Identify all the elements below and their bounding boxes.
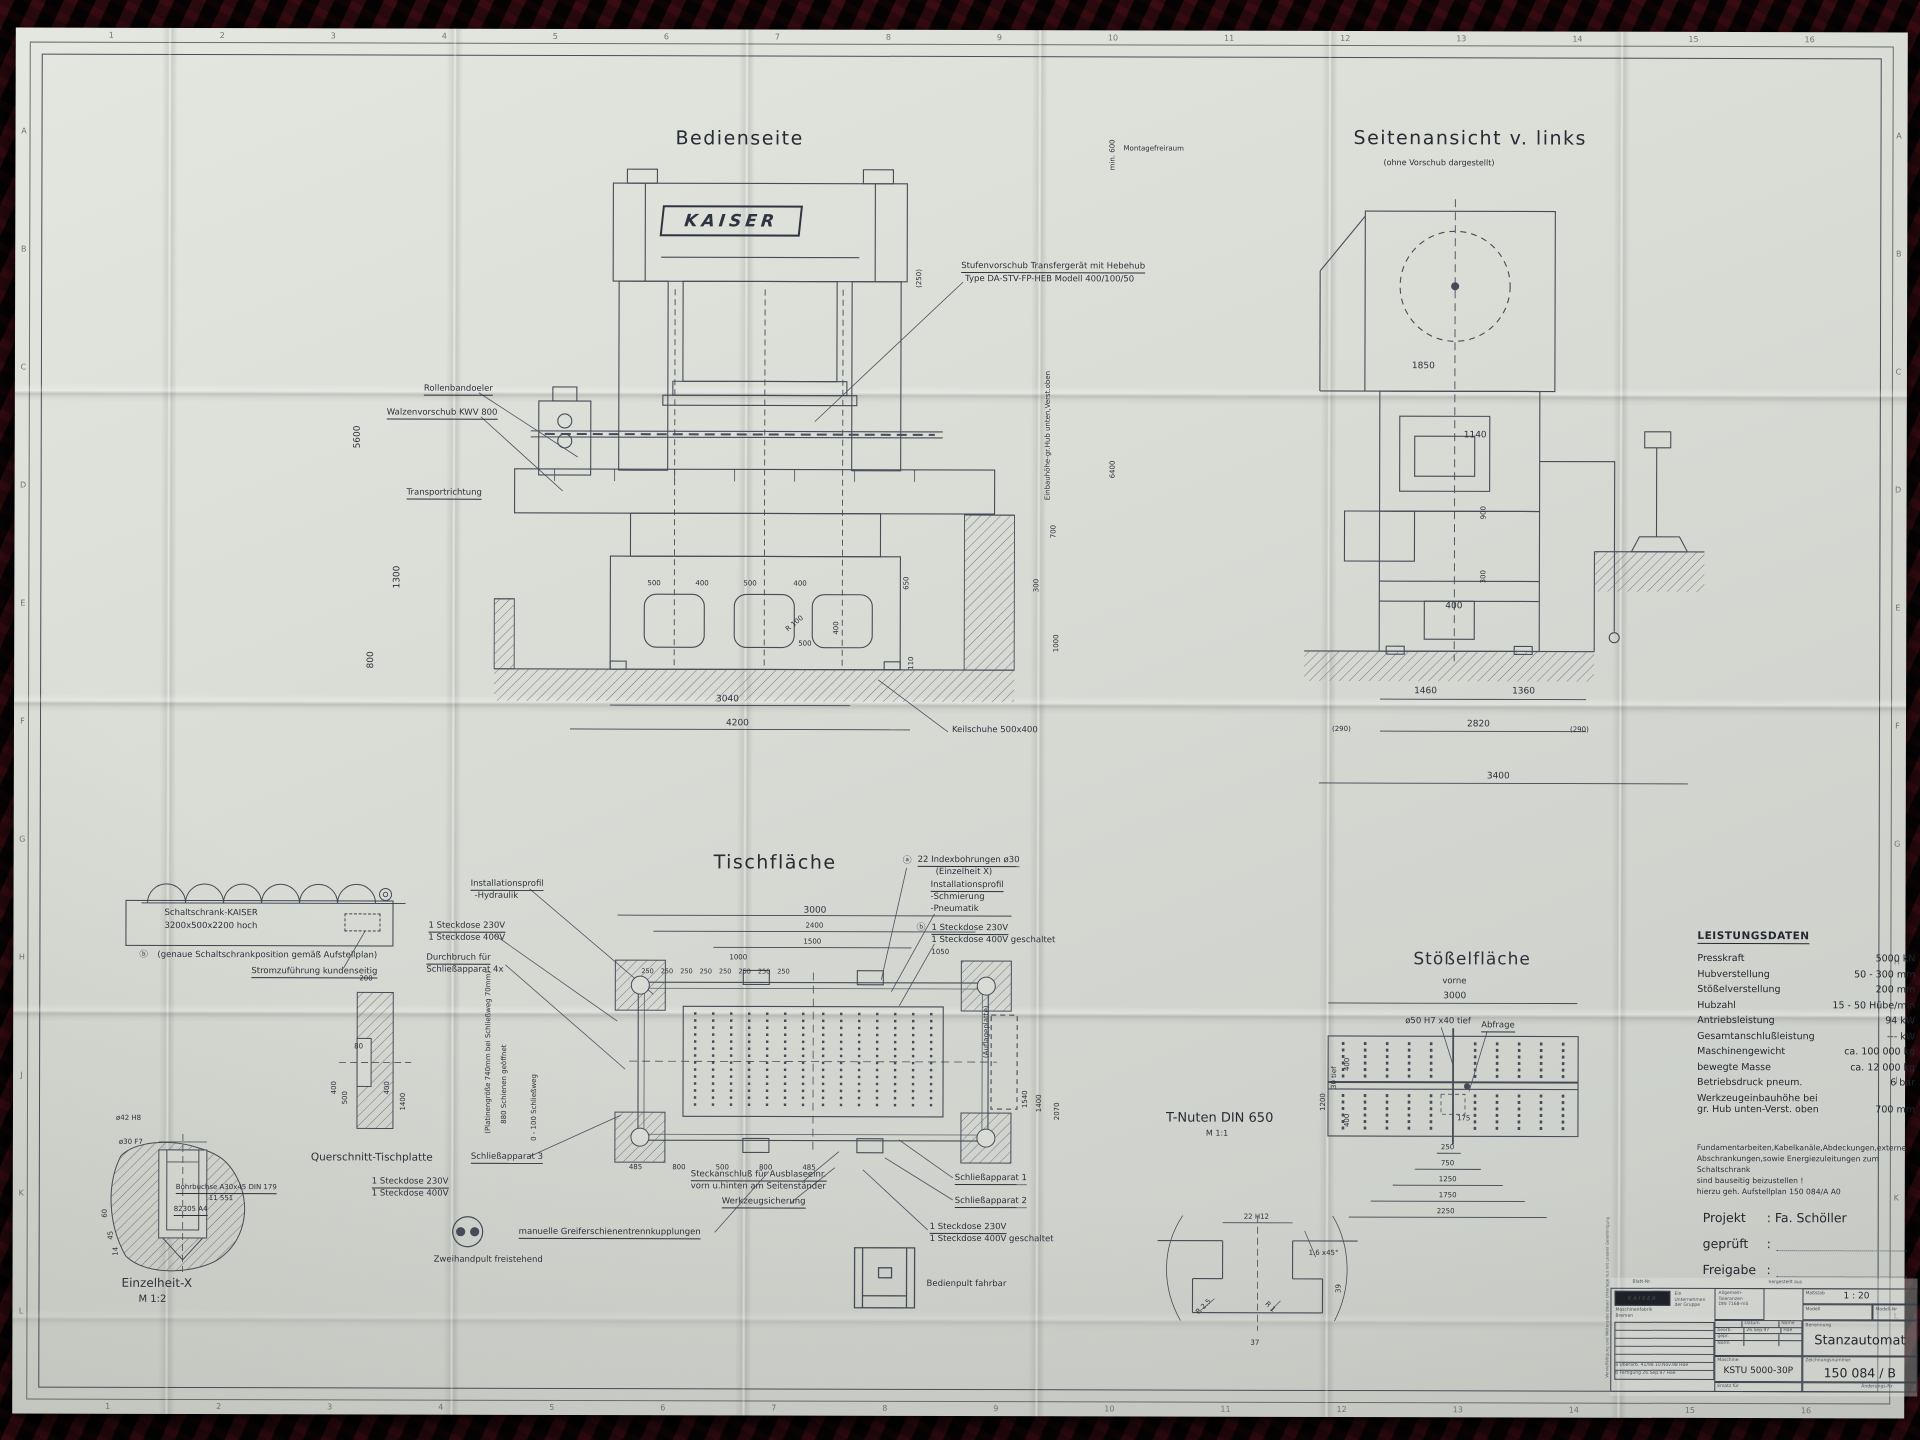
bearb-date: 26.Sep.97 xyxy=(1743,1328,1780,1334)
label-steckanschluss-1: Steckanschluß für Ausblaseeinr. xyxy=(691,1169,827,1181)
label-steckanschluss-2: vorn u.hinten am Seitenständer xyxy=(691,1181,826,1191)
label-steckdose-400-left: 1 Steckdose 400V xyxy=(428,933,505,943)
dim-opening: 500 xyxy=(647,579,660,587)
dim-700: 700 xyxy=(1049,525,1057,538)
aenderung-label: Änderungs-Nr xyxy=(1861,1384,1892,1390)
label-durchbruch-1: Durchbruch für xyxy=(426,953,490,965)
colon: : xyxy=(1767,1262,1771,1277)
massstab-value: 1 : 20 xyxy=(1843,1291,1869,1301)
dim-80: 80 xyxy=(354,1042,363,1050)
dim-250: 250 xyxy=(680,967,692,975)
note-line: hierzu geh. Aufstellplan 150 084/A A0 xyxy=(1697,1186,1906,1198)
hergestellt-label: hergestellt aus xyxy=(1769,1280,1803,1286)
view-title-querschnitt: Querschnitt-Tischplatte xyxy=(311,1151,433,1163)
leistungsdaten-title: LEISTUNGSDATEN xyxy=(1697,930,1809,944)
label-instprofil-left-1: Installationsprofil xyxy=(471,879,544,891)
dim-total-width: 4200 xyxy=(726,718,749,728)
dim-400-bottom: 400 xyxy=(1343,1114,1351,1127)
ld-value: 94 kW xyxy=(1885,1015,1915,1026)
schaltschrank-line1: Schaltschrank-KAISER xyxy=(164,908,257,918)
schaltschrank-note: (genaue Schaltschrankposition gemäß Aufs… xyxy=(157,950,377,961)
kaiser-machine-logo: KAISER xyxy=(660,205,803,236)
label-steckdose-400-bl: 1 Steckdose 400V xyxy=(372,1188,449,1198)
label-steckdose-230-left: 1 Steckdose 230V xyxy=(428,921,505,933)
label-walzenvorschub: Walzenvorschub KWV 800 xyxy=(387,407,498,419)
toleranz-line: DIN 7168-mS xyxy=(1715,1302,1763,1308)
schaltschrank-box: Schaltschrank-KAISER 3200x500x2200 hoch xyxy=(125,900,393,947)
dim-d42: ø42 H8 xyxy=(116,1114,141,1122)
dim-22h12: 22 H12 xyxy=(1244,1213,1269,1221)
dim-6400: 6400 xyxy=(1109,461,1117,479)
label-stufenvorschub-2: Type DA-STV-FP-HEB Modell 400/100/50 xyxy=(965,274,1134,284)
dim-1360: 1360 xyxy=(1512,686,1535,696)
label-instprofil-right-3: -Pneumatik xyxy=(931,904,979,914)
label-einzelheit-ref: (Einzelheit X) xyxy=(936,867,993,877)
dim-bottom: 800 xyxy=(672,1163,685,1171)
dim-400: 400 xyxy=(1445,601,1462,611)
dim-300: 300 xyxy=(1479,570,1487,583)
view-title-tnuten: T-Nuten DIN 650 xyxy=(1166,1111,1273,1126)
view-title-einzelheit: Einzelheit-X xyxy=(122,1276,193,1290)
dim-1540: 1540 xyxy=(1021,1090,1029,1108)
massstab-cell: Maßstab 1 : 20 xyxy=(1802,1288,1917,1304)
dim-2400: 2400 xyxy=(805,922,823,930)
press-front-view-drawing xyxy=(494,169,1015,740)
modell-cell: Modell xyxy=(1802,1304,1872,1320)
querschnitt-drawing xyxy=(335,980,415,1140)
dim-d30: ø30 F7 xyxy=(119,1138,143,1146)
ld-label: Hubverstellung xyxy=(1697,968,1769,979)
index-mark: ⓐ xyxy=(903,856,912,866)
dim-opening: 400 xyxy=(695,579,708,587)
dim-110: 110 xyxy=(907,656,915,669)
colon: : xyxy=(1767,1236,1771,1251)
label-bedienpult: Bedienpult fahrbar xyxy=(927,1279,1007,1289)
dim-1250: 1250 xyxy=(1439,1175,1457,1183)
ld-label: Stößelverstellung xyxy=(1697,984,1780,995)
revision-row: b Fertigung 26.Sep.97 Hae xyxy=(1615,1371,1713,1378)
dim-2820: 2820 xyxy=(1467,719,1490,729)
dim-3400: 3400 xyxy=(1487,771,1510,781)
label-schliessapparat-3: Schließapparat 3 xyxy=(471,1152,543,1164)
schaltschrank-line2: 3200x500x2200 hoch xyxy=(164,921,257,931)
dim-base-width: 3040 xyxy=(716,694,739,704)
projekt-label: Projekt xyxy=(1703,1210,1767,1225)
dim-3000: 3000 xyxy=(803,906,826,916)
label-transportrichtung: Transportrichtung xyxy=(407,488,482,500)
dim-250: 250 xyxy=(661,967,673,975)
stromzufuehrung-marker xyxy=(344,913,380,931)
label-werkzeugsicherung: Werkzeugsicherung xyxy=(722,1196,806,1208)
dim-height-base: 800 xyxy=(366,651,376,668)
ld-value: ca. 12 000 kg xyxy=(1850,1062,1915,1073)
norm-label: Norm xyxy=(1715,1340,1743,1346)
freigabe-label: Freigabe xyxy=(1703,1262,1767,1277)
ld-value: 5000 kN xyxy=(1876,953,1916,964)
dim-60: 60 xyxy=(101,1209,109,1218)
modell-label: Modell xyxy=(1805,1307,1820,1313)
maschine-cell: Maschine KSTU 5000-30P xyxy=(1714,1356,1802,1382)
dim-1000: 1000 xyxy=(1052,634,1060,652)
dim-250: 250 xyxy=(758,967,770,975)
dim-300: 300 xyxy=(1032,579,1040,592)
bearb-name: Hae xyxy=(1780,1328,1801,1334)
note-line: sind bauseitig beizustellen ! xyxy=(1697,1175,1906,1187)
schaltschrank-note-mark: ⓑ xyxy=(139,950,148,960)
dim-2070: 2070 xyxy=(1053,1102,1061,1120)
copyright-note: Vervielfältigung und Weitergabe dieser U… xyxy=(1604,1217,1609,1378)
tnuten-scale: M 1:1 xyxy=(1206,1129,1228,1138)
dim-175: 175 xyxy=(1457,1114,1470,1122)
label-bohrung-50: ø50 H7 x40 tief xyxy=(1405,1016,1471,1026)
label-schliessweg: 0 - 100 Schließweg xyxy=(529,1074,539,1141)
benennung-label: Benennung xyxy=(1805,1323,1831,1329)
drawing-number: 150 084 / B xyxy=(1803,1365,1916,1380)
dim-1050: 1050 xyxy=(931,948,949,956)
datum-name-table: Datum Name bearb. 26.Sep.97 Hae gepr. No… xyxy=(1714,1320,1802,1356)
table-plan-drawing xyxy=(603,954,1024,1170)
dim-400-left: 400 xyxy=(330,1081,338,1094)
view-subtitle-seitenansicht: (ohne Vorschub dargestellt) xyxy=(1383,158,1494,167)
name-header: Name xyxy=(1778,1321,1801,1327)
label-indexbohrungen: 22 Indexbohrungen ø30 xyxy=(918,855,1020,867)
benennung-cell: Benennung Stanzautomat xyxy=(1802,1320,1917,1356)
view-title-tischflaeche: Tischfläche xyxy=(714,851,837,873)
dim-500: 500 xyxy=(341,1091,349,1104)
zeichnung-label: Zeichnungsnummer xyxy=(1805,1358,1850,1364)
note-line: Abschrankungen,sowie Energiezuleitungen … xyxy=(1697,1153,1906,1176)
drawing-title: Stanzautomat xyxy=(1803,1333,1916,1348)
zeichnungsnummer-cell: Zeichnungsnummer 150 084 / B xyxy=(1802,1356,1917,1382)
dim-1750: 1750 xyxy=(1439,1191,1457,1199)
label-steckdose-230-br: 1 Steckdose 230V xyxy=(930,1222,1007,1234)
dim-1850: 1850 xyxy=(1412,361,1435,371)
maschine-label: Maschine xyxy=(1717,1358,1738,1364)
dim-250: 250 xyxy=(1441,1143,1454,1151)
ld-value: ca. 100 000 kg xyxy=(1844,1046,1915,1057)
einzelheit-drawing xyxy=(101,1128,261,1278)
ld-label: bewegte Masse xyxy=(1697,1061,1771,1072)
drawing-sheet: 12345678910111213141516 1234567891011121… xyxy=(12,28,1908,1419)
project-block: Projekt : Fa. Schöller geprüft : Freigab… xyxy=(1703,1210,1907,1289)
dim-opening: 400 xyxy=(793,580,806,588)
dim-200: 200 xyxy=(359,974,372,982)
dim-height-total: 5600 xyxy=(353,426,363,449)
label-stufenvorschub-1: Stufenvorschub Transfergerät mit Hebehub xyxy=(961,261,1145,273)
dim-250: 250 xyxy=(641,967,653,975)
label-schliessapparat-1: Schließapparat 1 xyxy=(955,1173,1027,1185)
dim-1460: 1460 xyxy=(1414,686,1437,696)
label-bohrbuchse-num: 11 551 xyxy=(209,1193,234,1203)
revision-row: a Überarb. 41/98 10.Nov.98 Hae xyxy=(1615,1363,1713,1371)
dim-opening: 500 xyxy=(743,579,756,587)
projekt-value: : Fa. Schöller xyxy=(1767,1210,1847,1225)
label-30-tief: 30 tief xyxy=(1329,1066,1339,1089)
dim-1000: 1000 xyxy=(729,953,747,961)
view-title-seitenansicht: Seitenansicht v. links xyxy=(1354,127,1587,150)
datum-header: Datum xyxy=(1741,1321,1778,1327)
revision-table: a Überarb. 41/98 10.Nov.98 Hae b Fertigu… xyxy=(1614,1322,1714,1380)
ld-label: Werkzeugeinbauhöhe bei gr. Hub unten-Ver… xyxy=(1697,1092,1819,1114)
dim-1400: 1400 xyxy=(1035,1094,1043,1112)
dim-250: 250 xyxy=(719,967,731,975)
steckdose-mark: ⓑ xyxy=(916,923,925,933)
dim-900: 900 xyxy=(1480,506,1488,519)
dim-290-left: (290) xyxy=(1332,725,1351,733)
note-line: Fundamentarbeiten,Kabelkanäle,Abdeckunge… xyxy=(1697,1142,1906,1154)
ld-value: 6 bar xyxy=(1890,1077,1915,1088)
blatt-nr-label: Blatt-Nr. xyxy=(1633,1280,1651,1286)
label-instprofil-right-1: Installationsprofil xyxy=(931,880,1004,892)
dim-250: (250) xyxy=(915,269,923,288)
ld-value: 700 mm xyxy=(1875,1104,1915,1115)
label-auflageplatte: (Auflageplatte) xyxy=(981,1005,991,1058)
modellnr-cell: Modell-Nr xyxy=(1872,1304,1917,1320)
dim-14: 14 xyxy=(112,1247,120,1256)
label-zweihandpult: Zweihandpult freistehend xyxy=(434,1255,543,1265)
bedienpult-symbol xyxy=(852,1246,916,1310)
ld-label: Presskraft xyxy=(1697,953,1744,964)
toleranz-cell: Allgemein- Toleranzen DIN 7168-mS xyxy=(1714,1288,1764,1320)
label-steckdose-230-tr: 1 Steckdose 230V xyxy=(931,923,1008,935)
dim-2250: 2250 xyxy=(1437,1207,1455,1215)
ld-value: --- kW xyxy=(1887,1031,1915,1042)
kaiser-titleblock-logo: KAISER xyxy=(1614,1291,1670,1306)
label-steckdose-400-br: 1 Steckdose 400V geschaltet xyxy=(930,1234,1054,1244)
label-rollenbandoeler: Rollenbandoeler xyxy=(424,384,493,396)
leistungsdaten-table: LEISTUNGSDATEN Presskraft5000 kN Hubvers… xyxy=(1697,930,1915,1120)
massstab-label: Maßstab xyxy=(1806,1291,1825,1297)
aenderung-cell: Änderungs-Nr xyxy=(1802,1382,1917,1392)
dim-1500: 1500 xyxy=(803,938,821,946)
label-einbauhoehe: Einbauhöhe-gr.Hub unten,Verst.oben xyxy=(1043,371,1053,500)
label-instprofil-left-2: -Hydraulik xyxy=(475,891,519,901)
dim-1400: 1400 xyxy=(399,1093,407,1111)
dim-height-mid: 1300 xyxy=(392,566,402,589)
ld-label: Gesamtanschlußleistung xyxy=(1697,1030,1815,1041)
dim-290-right: (290) xyxy=(1570,726,1589,734)
geprueft-label: geprüft xyxy=(1703,1236,1767,1251)
dim-250: 250 xyxy=(777,968,789,976)
ld-value: 15 - 50 Hübe/min xyxy=(1832,1000,1915,1011)
maschine-value: KSTU 5000-30P xyxy=(1715,1366,1801,1376)
label-steckdose-230-bl: 1 Steckdose 230V xyxy=(372,1176,449,1188)
signature-line xyxy=(1777,1239,1907,1251)
dim-650: 650 xyxy=(902,576,910,589)
ld-label: Antriebsleistung xyxy=(1697,1015,1775,1026)
label-montagefreiraum: Montagefreiraum xyxy=(1123,143,1183,153)
dim-opening-w: 500 xyxy=(798,640,811,648)
label-min600: min. 600 xyxy=(1107,139,1117,170)
view-title-stoesselflaeche: Stößelfläche xyxy=(1413,949,1531,969)
label-schliessapparat-2: Schließapparat 2 xyxy=(955,1196,1027,1208)
dim-chamfer: 1.6 x45° xyxy=(1309,1249,1339,1257)
dim-sf-3000: 3000 xyxy=(1443,991,1466,1001)
ersatz-cell: Ersatz für xyxy=(1714,1382,1802,1392)
ld-value: 200 mm xyxy=(1876,984,1916,995)
stoessel-plan-drawing xyxy=(1313,1026,1593,1147)
label-keilschuhe: Keilschuhe 500x400 xyxy=(952,725,1038,735)
label-platinengroesse: (Platinengröße 740mm bei Schließweg 70mm… xyxy=(483,971,493,1134)
ld-label: Maschinengewicht xyxy=(1697,1046,1785,1057)
toleranz-line: Allgemein- xyxy=(1716,1289,1764,1297)
dim-400-right: 400 xyxy=(383,1081,391,1094)
zweihand-symbol xyxy=(449,1213,487,1251)
dim-45: 45 xyxy=(107,1231,115,1240)
press-side-view-drawing xyxy=(1304,191,1705,752)
label-pos-82305: 82305 A4 xyxy=(174,1204,208,1216)
ld-label: Betriebsdruck pneum. xyxy=(1697,1077,1802,1088)
dim-opening-h: 400 xyxy=(832,621,840,634)
dim-39: 39 xyxy=(1335,1284,1343,1293)
bearb-label: bearb. xyxy=(1715,1327,1743,1333)
dim-250: 250 xyxy=(738,967,750,975)
label-schienen: 880 Schienen geöffnet xyxy=(499,1044,509,1123)
label-steckdose-400-tr: 1 Steckdose 400V geschaltet xyxy=(931,935,1055,945)
dim-1200: 1200 xyxy=(1319,1093,1327,1111)
gepr-label: gepr. xyxy=(1715,1334,1743,1340)
title-block: Blatt-Nr. hergestellt aus Vervielfältigu… xyxy=(1610,1278,1917,1397)
foundation-note: Fundamentarbeiten,Kabelkanäle,Abdeckunge… xyxy=(1697,1142,1906,1198)
firm-line: Maschinenfabrik xyxy=(1615,1308,1652,1314)
label-greifer: manuelle Greiferschienentrennkupplungen xyxy=(519,1227,701,1239)
dim-1140: 1140 xyxy=(1464,430,1487,440)
dim-400-top: 400 xyxy=(1343,1058,1351,1071)
einzelheit-scale: M 1:2 xyxy=(138,1294,166,1305)
unternehmen-note: Ein Unternehmen der Gruppe xyxy=(1674,1292,1712,1309)
label-instprofil-right-2: -Schmierung xyxy=(931,892,985,902)
ld-value: 50 - 300 mm xyxy=(1854,969,1915,980)
ersatz-label: Ersatz für xyxy=(1717,1384,1739,1390)
label-vorne: vorne xyxy=(1442,976,1466,986)
dim-37: 37 xyxy=(1250,1339,1259,1347)
dim-bottom: 485 xyxy=(629,1163,642,1171)
ld-label: Hubzahl xyxy=(1697,999,1736,1010)
dim-250-row: 250250250250250250250250 xyxy=(641,967,789,975)
view-title-bedienseite: Bedienseite xyxy=(676,127,804,149)
modellnr-label: Modell-Nr xyxy=(1875,1307,1897,1313)
firm-line: Bremen xyxy=(1615,1314,1633,1320)
dim-750: 750 xyxy=(1441,1159,1454,1167)
signature-line xyxy=(1777,1265,1907,1277)
dim-250: 250 xyxy=(700,967,712,975)
